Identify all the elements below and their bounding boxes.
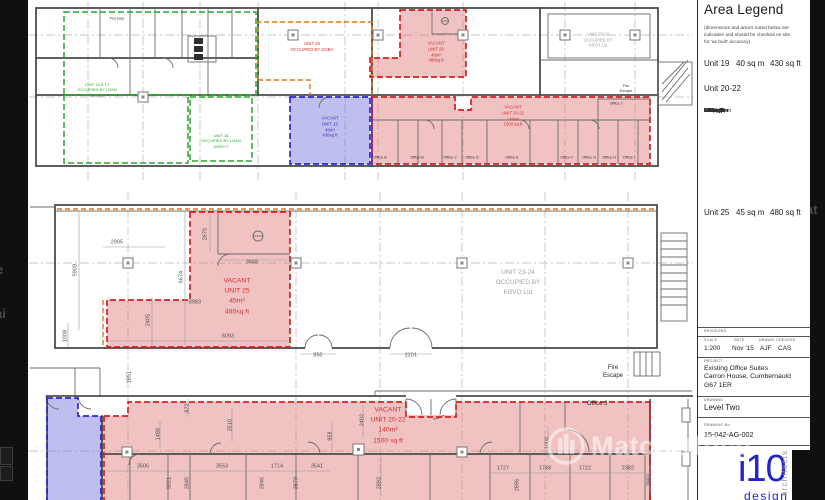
overview-floor-plan [36,8,692,166]
scale-value: 1:200 [704,345,720,352]
unit-25-floor-plan [30,205,687,376]
unit-16-17-outline [64,12,256,95]
watermark-fragment: at [806,202,818,217]
cropped-plan-fragment [0,466,13,481]
right-crop-bar [810,0,825,500]
legend-title: Area Legend [704,2,784,17]
unit-20-22-floor-plan [30,368,692,500]
checked-value: CAS [778,345,791,352]
external-stair-icon [661,233,687,321]
drawing-title: Level Two [704,403,740,412]
fire-escape-stair-icon [634,352,660,376]
fire-escape-stair-icon [658,60,692,105]
watermark-fragment: ai [0,306,6,321]
unit-26-outline [258,22,372,95]
date-value: Nov '15 [732,345,754,352]
right-bottom-crop-bar [792,450,825,500]
watermark-fragment: e [0,262,3,277]
project-name: Existing Office Suites Carron House, Cum… [704,365,810,390]
drawn-value: AJF [760,345,772,352]
left-crop-bar [0,0,28,500]
drawn-label: DRAWN [759,338,774,342]
unit-20-22-heading: Unit 20-22 [704,84,741,93]
scale-label: SCALE [704,338,717,342]
logo-architects-text: architects [779,450,789,496]
project-label: PROJECT [704,359,723,363]
revisions-label: REVISIONS [704,329,726,333]
floorplan-drawing-sheet: UNIT 16 & 17 OCCUPIED BY LOAN DIRECTUNIT… [0,0,825,500]
unit-19-summary: Unit 19 40 sq m 430 sq ft [704,59,806,68]
checked-label: CHECKED [776,338,796,342]
drawing-number: 15-042-AG-002 [704,430,754,439]
unit-25-summary: Unit 25 45 sq m 480 sq ft [704,208,806,217]
legend-disclaimer: (dimensions and area's noted below are i… [704,25,806,47]
drawing-label: DRAWING [704,398,723,402]
unit-18-outline [190,97,252,161]
drawing-no-label: DRAWING No. [704,423,731,427]
cropped-plan-fragment [0,447,13,465]
legend-panel: Area Legend (dimensions and area's noted… [697,0,811,500]
date-label: DATE [734,338,745,342]
